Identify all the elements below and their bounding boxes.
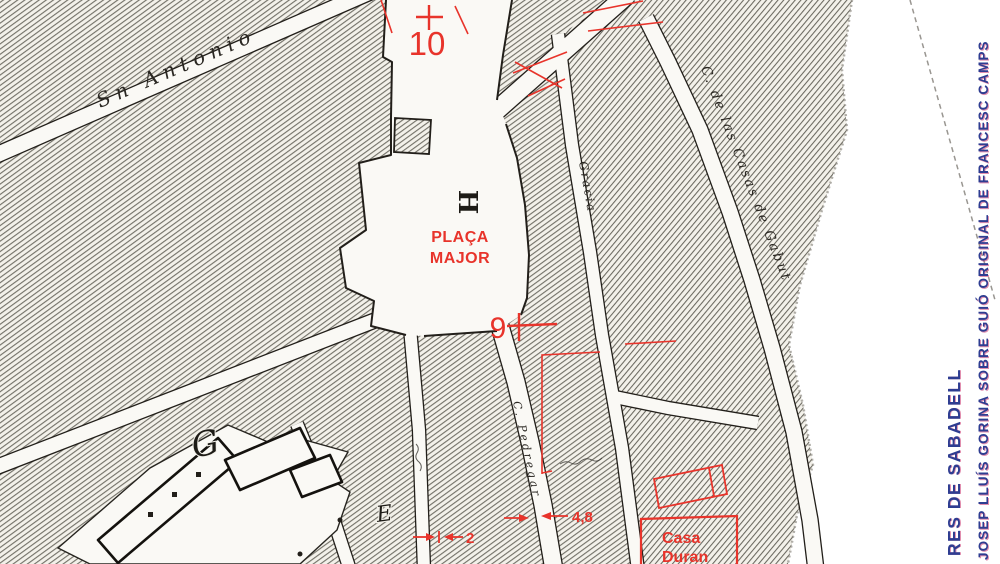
caption-credit: JOSEP LLUÍS GORINA SOBRE GUIÓ ORIGINAL D… xyxy=(976,40,991,560)
marker-label-10: 10 xyxy=(409,25,446,62)
dim-2-value: 2 xyxy=(466,530,474,547)
block-letter-e: E xyxy=(374,501,394,528)
city-map-svg: H G E Sn Antonio C. de las Casas de Gabu… xyxy=(0,0,1000,564)
casa-duran-label-line1: Casa xyxy=(662,530,700,547)
historic-map-page: H G E Sn Antonio C. de las Casas de Gabu… xyxy=(0,0,1000,564)
page-margin: RES DE SABADELL RES DE SABADELL JOSEP LL… xyxy=(910,0,995,561)
block-letter-h: H xyxy=(452,190,482,215)
plaza-notch-block xyxy=(394,118,431,154)
caption-title: RES DE SABADELL xyxy=(944,368,964,556)
placa-major-label-line2: MAJOR xyxy=(430,250,490,267)
dim-4-8-value: 4,8 xyxy=(572,509,593,526)
casa-duran-label-line2: Duran xyxy=(662,549,708,564)
marker-label-9: 9 xyxy=(490,312,507,345)
placa-major-label-line1: PLAÇA xyxy=(431,229,489,246)
margin-captions: RES DE SABADELL RES DE SABADELL JOSEP LL… xyxy=(944,40,992,561)
